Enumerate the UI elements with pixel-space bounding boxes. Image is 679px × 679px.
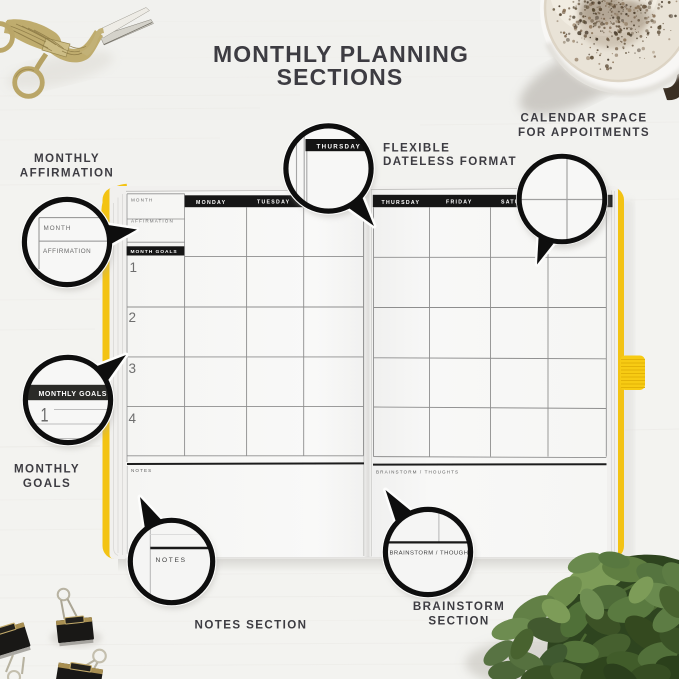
svg-text:NOTES: NOTES (156, 557, 187, 564)
svg-text:AFFIRMATION: AFFIRMATION (131, 219, 174, 224)
svg-text:BRAINSTORM: BRAINSTORM (413, 600, 505, 613)
svg-text:THURSDAY: THURSDAY (317, 143, 362, 150)
svg-text:SECTIONS: SECTIONS (277, 64, 404, 90)
svg-text:MONDAY: MONDAY (196, 200, 226, 206)
svg-text:MONTHLY GOALS: MONTHLY GOALS (39, 391, 107, 398)
svg-text:NOTES SECTION: NOTES SECTION (195, 619, 308, 632)
svg-text:GOALS: GOALS (23, 477, 71, 490)
svg-text:1: 1 (41, 403, 49, 426)
svg-text:NOTES: NOTES (131, 468, 152, 473)
svg-text:FRIDAY: FRIDAY (446, 200, 473, 206)
svg-text:3: 3 (129, 361, 137, 376)
svg-text:AFFIRMATION: AFFIRMATION (20, 167, 114, 180)
svg-text:CALENDAR SPACE: CALENDAR SPACE (521, 112, 648, 125)
svg-text:4: 4 (129, 411, 137, 426)
svg-text:BRAINSTORM / THOUGH: BRAINSTORM / THOUGH (390, 550, 469, 556)
svg-text:FLEXIBLE: FLEXIBLE (383, 142, 450, 155)
svg-text:MONTH: MONTH (131, 198, 153, 203)
svg-text:TUESDAY: TUESDAY (257, 200, 290, 206)
svg-text:2: 2 (129, 310, 137, 325)
svg-text:FOR APPOITMENTS: FOR APPOITMENTS (518, 126, 650, 139)
svg-text:SECTION: SECTION (428, 615, 489, 628)
svg-text:THURSDAY: THURSDAY (382, 200, 421, 206)
svg-text:DATELESS FORMAT: DATELESS FORMAT (383, 155, 517, 168)
svg-text:MONTH GOALS: MONTH GOALS (131, 249, 178, 255)
svg-text:MONTHLY: MONTHLY (14, 463, 80, 476)
svg-text:MONTHLY: MONTHLY (34, 152, 100, 165)
svg-text:AFFIRMATION: AFFIRMATION (43, 248, 91, 255)
svg-text:MONTH: MONTH (44, 225, 72, 232)
svg-text:1: 1 (130, 260, 138, 275)
svg-text:BRAINSTORM / THOUGHTS: BRAINSTORM / THOUGHTS (376, 469, 459, 474)
